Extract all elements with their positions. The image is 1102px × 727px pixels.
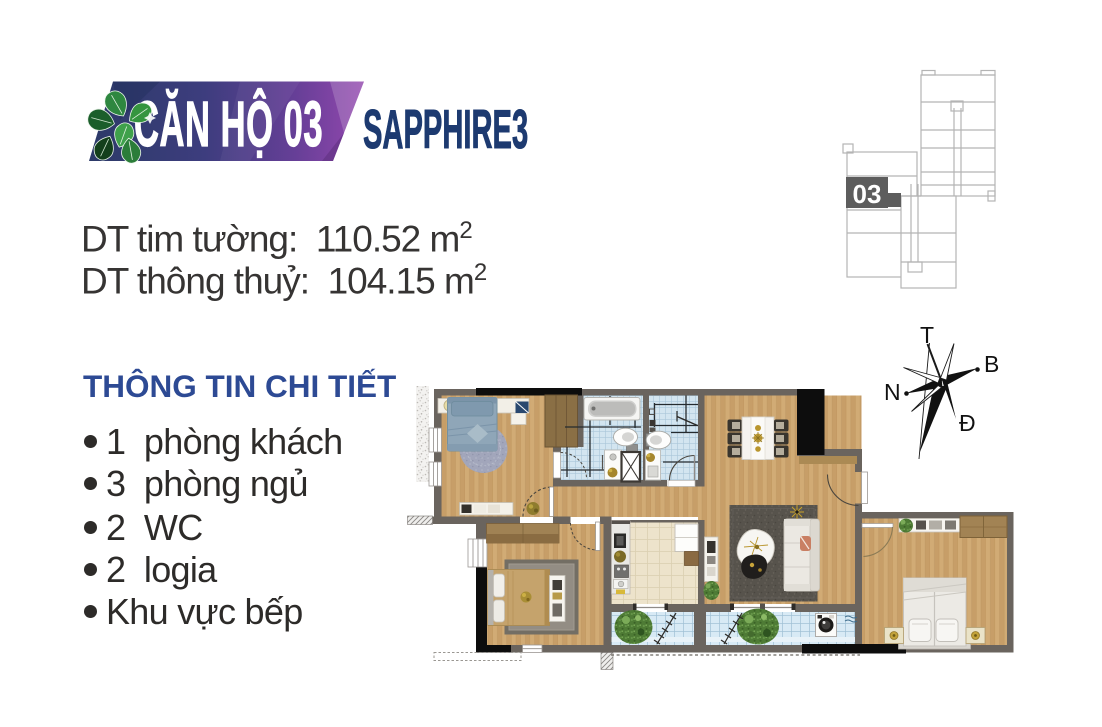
svg-text:SAPPHIRE3: SAPPHIRE3	[363, 99, 528, 160]
svg-text:03: 03	[853, 179, 882, 209]
svg-text:B: B	[984, 351, 999, 377]
svg-text:CĂN HỘ 03: CĂN HỘ 03	[134, 88, 323, 160]
svg-text:T: T	[920, 322, 934, 348]
